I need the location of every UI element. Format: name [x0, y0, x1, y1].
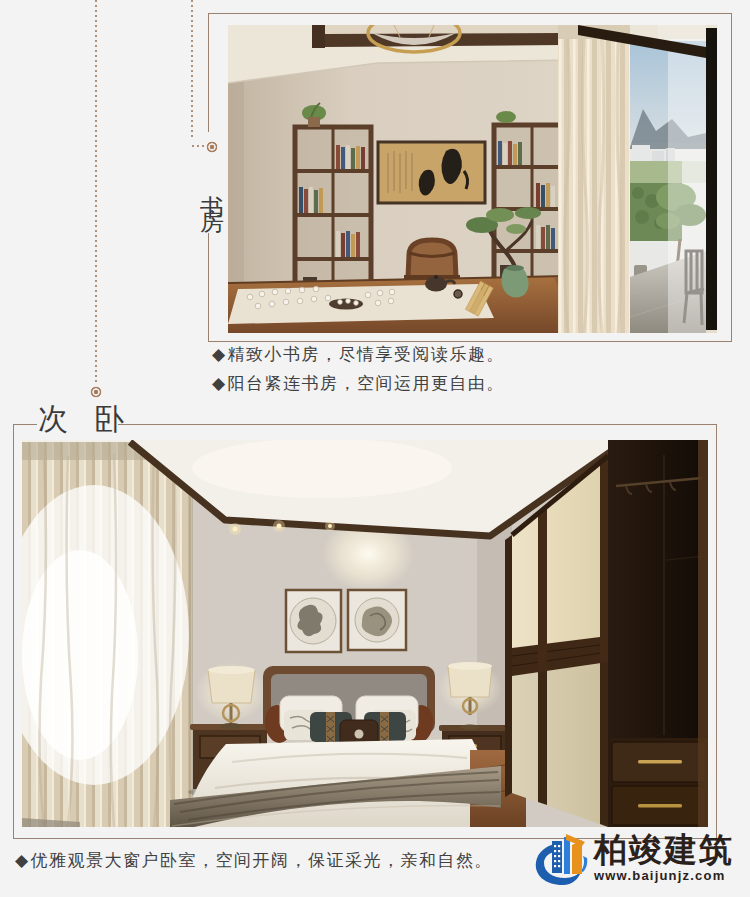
section-title-study: 书房: [195, 139, 229, 239]
bedroom-bullet-1: ◆优雅观景大窗户卧室，空间开阔，保证采光，亲和自然。: [15, 846, 493, 875]
company-website: www.baijunjz.com: [594, 868, 734, 883]
study-bullets: ◆精致小书房，尽情享受阅读乐趣。 ◆阳台紧连书房，空间运用更自由。: [212, 340, 505, 398]
study-bullet-2: ◆阳台紧连书房，空间运用更自由。: [212, 369, 505, 398]
study-frame-left-lower: [208, 233, 209, 341]
study-bullet-2-text: 阳台紧连书房，空间运用更自由。: [228, 374, 506, 393]
bedroom-frame-top-stub: [13, 424, 37, 425]
study-frame-left-upper: [208, 13, 209, 132]
bedroom-frame-right: [716, 424, 717, 839]
study-bullet-1: ◆精致小书房，尽情享受阅读乐趣。: [212, 340, 505, 369]
bedroom-bullet-1-text: 优雅观景大窗户卧室，空间开阔，保证采光，亲和自然。: [31, 851, 494, 870]
dotted-connector-bedroom: [95, 0, 97, 383]
company-name: 柏竣建筑: [594, 833, 734, 867]
diamond-bullet-icon: ◆: [15, 851, 30, 870]
bedroom-bullets: ◆优雅观景大窗户卧室，空间开阔，保证采光，亲和自然。: [15, 846, 493, 875]
bedroom-photo: [22, 440, 708, 827]
section-title-bedroom: 次 卧: [38, 399, 133, 440]
logo-text-block: 柏竣建筑 www.baijunjz.com: [594, 833, 734, 883]
study-frame-right: [731, 13, 732, 342]
dotted-connector-study: [191, 0, 193, 139]
building-logo-icon: [532, 833, 590, 887]
dotted-connector-bedroom-dot: [90, 386, 102, 398]
diamond-bullet-icon: ◆: [212, 374, 227, 393]
diamond-bullet-icon: ◆: [212, 345, 227, 364]
study-photo: [228, 25, 717, 333]
page: 书房: [0, 0, 750, 897]
bedroom-frame-top: [118, 424, 716, 425]
study-frame-top: [208, 13, 732, 14]
study-bullet-1-text: 精致小书房，尽情享受阅读乐趣。: [228, 345, 506, 364]
company-logo: 柏竣建筑 www.baijunjz.com: [532, 833, 734, 887]
bedroom-frame-left: [13, 424, 14, 839]
